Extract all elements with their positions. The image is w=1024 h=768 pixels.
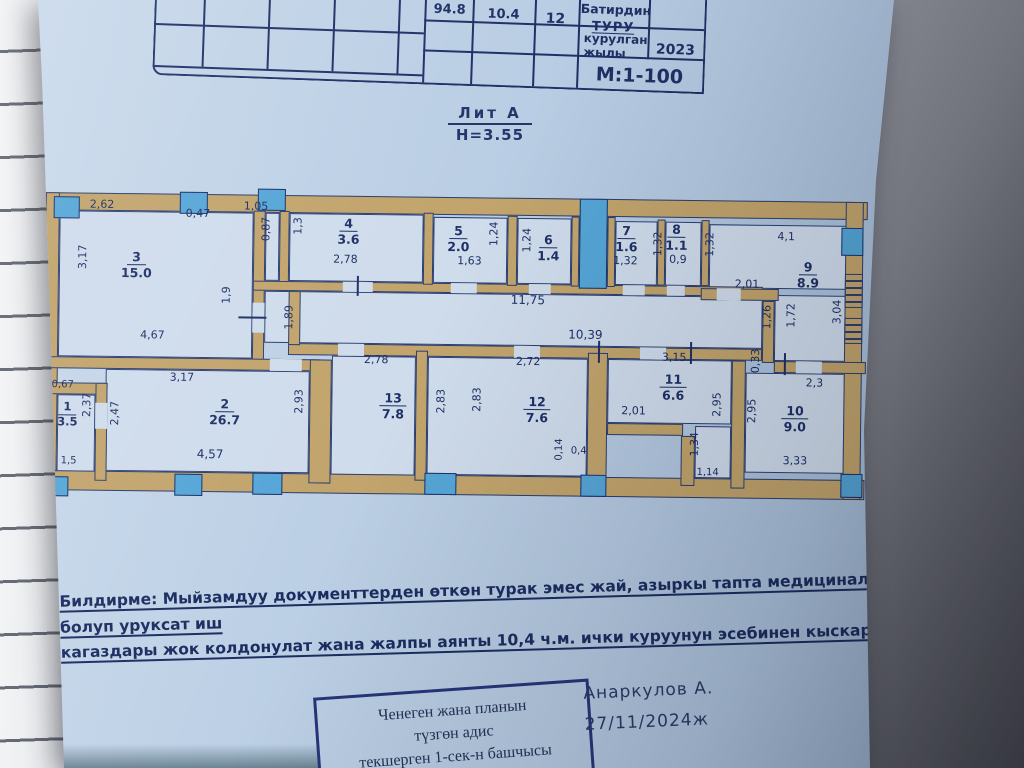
room-number: 12 <box>523 394 551 410</box>
room-label: 109.0 <box>781 403 809 434</box>
room-number: 6 <box>539 232 558 248</box>
room-number: 3 <box>127 249 146 265</box>
dim-label: 0,14 <box>555 438 565 460</box>
wall <box>607 423 683 436</box>
window-marker <box>424 473 456 495</box>
room-area: 26.7 <box>209 412 240 427</box>
hatched-wall <box>844 318 862 344</box>
table-cell-reduced-area: 10.4 <box>479 6 527 23</box>
liter-label: Лит А <box>448 104 532 125</box>
window-marker <box>252 473 282 495</box>
year-label-2: жылы <box>583 45 626 60</box>
room-area: 7.8 <box>382 406 404 421</box>
room-area: 7.6 <box>526 410 548 425</box>
room-number: 2 <box>215 396 234 412</box>
blueprint-paper: 94.8 10.4 12 Батирдин ТУРУ курулган жылы… <box>0 0 1024 768</box>
dimension-tick <box>784 353 786 375</box>
dim-label: 2,78 <box>364 354 389 365</box>
dim-label: 1,32 <box>613 255 638 266</box>
window-marker <box>54 196 80 218</box>
stamp-box: Ченеген жана планын түзгөн адис текшерге… <box>313 678 595 768</box>
room-number: 9 <box>799 259 818 275</box>
door-opening <box>796 361 822 373</box>
dim-label: 2,83 <box>471 387 482 412</box>
dimension-tick <box>357 276 359 296</box>
dim-label: 1,5 <box>61 456 77 466</box>
door-opening <box>451 283 477 293</box>
room-number: 4 <box>339 216 358 232</box>
dimension-tick <box>238 316 266 318</box>
dim-label: 0,87 <box>260 217 271 242</box>
signature-block: Анаркулов А. 27/11/2024ж <box>583 673 716 740</box>
hatched-wall <box>845 274 863 308</box>
door-opening <box>95 403 107 429</box>
room-area: 1.1 <box>665 238 687 253</box>
dim-label: 2,47 <box>109 401 120 426</box>
room-area: 1.4 <box>537 248 559 263</box>
table-line <box>331 0 336 71</box>
dim-label: 1,63 <box>457 255 482 266</box>
room-area: 9.0 <box>784 419 806 434</box>
room-area: 3.6 <box>337 232 359 247</box>
dim-label: 1,3 <box>292 217 303 235</box>
dim-label: 3,17 <box>77 244 88 269</box>
room-area: 8.9 <box>797 275 819 290</box>
door-opening <box>338 344 364 356</box>
dim-label: 4,67 <box>140 329 165 340</box>
signature-date: 27/11/2024ж <box>584 704 715 740</box>
table-cell-total-area: 94.8 <box>431 2 468 18</box>
room-label: 52.0 <box>447 223 470 254</box>
dim-label: 2,72 <box>516 356 541 367</box>
room-number: 1 <box>58 400 76 415</box>
document-shadow: 94.8 10.4 12 Батирдин ТУРУ курулган жылы… <box>0 0 1024 768</box>
year-value: 2023 <box>651 41 700 59</box>
header-table: 94.8 10.4 12 Батирдин ТУРУ курулган жылы… <box>152 0 707 94</box>
dim-label: 11,75 <box>511 294 546 306</box>
table-line <box>154 65 422 76</box>
dim-label: 2,95 <box>711 392 722 417</box>
dim-label: 1,14 <box>696 468 718 478</box>
photo-background: 94.8 10.4 12 Батирдин ТУРУ курулган жылы… <box>0 0 1024 768</box>
dim-label: 0,4 <box>571 447 587 457</box>
wall <box>586 353 608 487</box>
apt-type-label-top: Батирдин <box>581 1 647 18</box>
dimension-tick <box>598 341 600 363</box>
height-label: H=3.55 <box>428 126 552 144</box>
dim-label: 2,93 <box>293 389 304 414</box>
dim-label: 1,24 <box>521 228 532 253</box>
wall <box>414 351 428 481</box>
note-text: Билдирме: Мыйзамдуу документтерден өткөн… <box>59 564 977 666</box>
room-area: 3.5 <box>57 415 78 429</box>
wall <box>279 211 290 283</box>
dim-label: 1,34 <box>689 432 700 457</box>
dim-label: 0,9 <box>669 254 687 265</box>
dimension-tick <box>690 342 692 364</box>
dim-label: 0,33 <box>750 349 761 374</box>
table-line <box>396 0 401 74</box>
door-opening <box>623 285 645 295</box>
dim-label: 3,33 <box>783 455 808 466</box>
dim-label: 3,04 <box>831 300 842 325</box>
dim-label: 1,32 <box>704 232 715 257</box>
dim-label: 10,39 <box>568 328 603 340</box>
wall <box>507 216 518 286</box>
dim-label: 2,37 <box>81 393 92 418</box>
room-label: 315.0 <box>121 249 152 280</box>
dim-label: 2,3 <box>806 377 824 388</box>
room-area: 1.6 <box>615 239 637 254</box>
room-label: 71.6 <box>615 223 638 254</box>
wall <box>94 383 107 481</box>
table-line <box>202 0 207 67</box>
window-marker <box>46 476 68 496</box>
table-line <box>470 0 476 84</box>
floor-plan: 315.0 2,62 0,47 1,05 3,17 1,9 4,67 0,87 … <box>36 186 876 514</box>
dim-label: 4,1 <box>777 231 795 242</box>
dim-label: 1,24 <box>488 221 499 246</box>
dim-label: 1,26 <box>761 305 772 330</box>
dim-label: 3,15 <box>662 352 687 363</box>
room-label: 43.6 <box>337 216 360 247</box>
paper-bottom-shadow <box>62 744 318 768</box>
table-line <box>422 0 428 82</box>
dim-label: 2,62 <box>90 199 115 210</box>
table-line <box>266 0 271 69</box>
room-number: 10 <box>781 403 809 419</box>
dim-label: 0,47 <box>186 208 211 219</box>
room-number: 11 <box>660 372 688 388</box>
dim-label: 2,01 <box>735 278 760 289</box>
dim-label: 2,78 <box>333 254 358 265</box>
room-label: 226.7 <box>209 396 240 427</box>
room-label: 61.4 <box>537 232 560 263</box>
wall <box>730 360 746 488</box>
door-opening <box>667 286 685 296</box>
room-number: 8 <box>667 222 686 238</box>
window-marker <box>174 474 202 496</box>
room-label: 98.9 <box>797 259 820 290</box>
wall <box>308 359 332 483</box>
room-number: 7 <box>617 223 636 239</box>
shaft-marker <box>579 199 608 289</box>
room-area: 2.0 <box>447 239 469 254</box>
door-opening <box>270 359 302 371</box>
room-number: 13 <box>379 390 407 406</box>
dim-label: 3,17 <box>170 372 195 383</box>
dim-label: 2,95 <box>746 399 757 424</box>
wall <box>423 213 434 285</box>
dim-label: 1,72 <box>785 303 796 328</box>
window-marker <box>580 475 606 497</box>
room-label: 81.1 <box>665 222 688 253</box>
window-marker <box>840 474 862 498</box>
dim-label: 1,9 <box>221 286 232 304</box>
window-marker <box>841 228 863 256</box>
dim-label: 1,32 <box>652 231 663 256</box>
dim-label: 0,67 <box>52 380 74 390</box>
room-area: 6.6 <box>662 388 684 403</box>
dim-label: 1,05 <box>244 200 269 211</box>
room-area: 15.0 <box>121 265 152 280</box>
room-label: 116.6 <box>659 372 687 403</box>
dim-label: 4,57 <box>197 448 224 460</box>
room-label: 127.6 <box>523 394 551 425</box>
dim-label: 2,01 <box>621 405 646 416</box>
table-line <box>156 23 424 34</box>
room-number: 5 <box>449 223 468 239</box>
room-label: 13.5 <box>57 400 78 429</box>
scale-label: М:1-100 <box>578 63 701 89</box>
plan-title: Лит А H=3.55 <box>428 103 552 144</box>
dim-label: 1,89 <box>283 305 294 330</box>
table-cell-count: 12 <box>536 10 575 27</box>
dim-label: 2,83 <box>435 389 446 414</box>
room-label: 137.8 <box>379 390 407 421</box>
